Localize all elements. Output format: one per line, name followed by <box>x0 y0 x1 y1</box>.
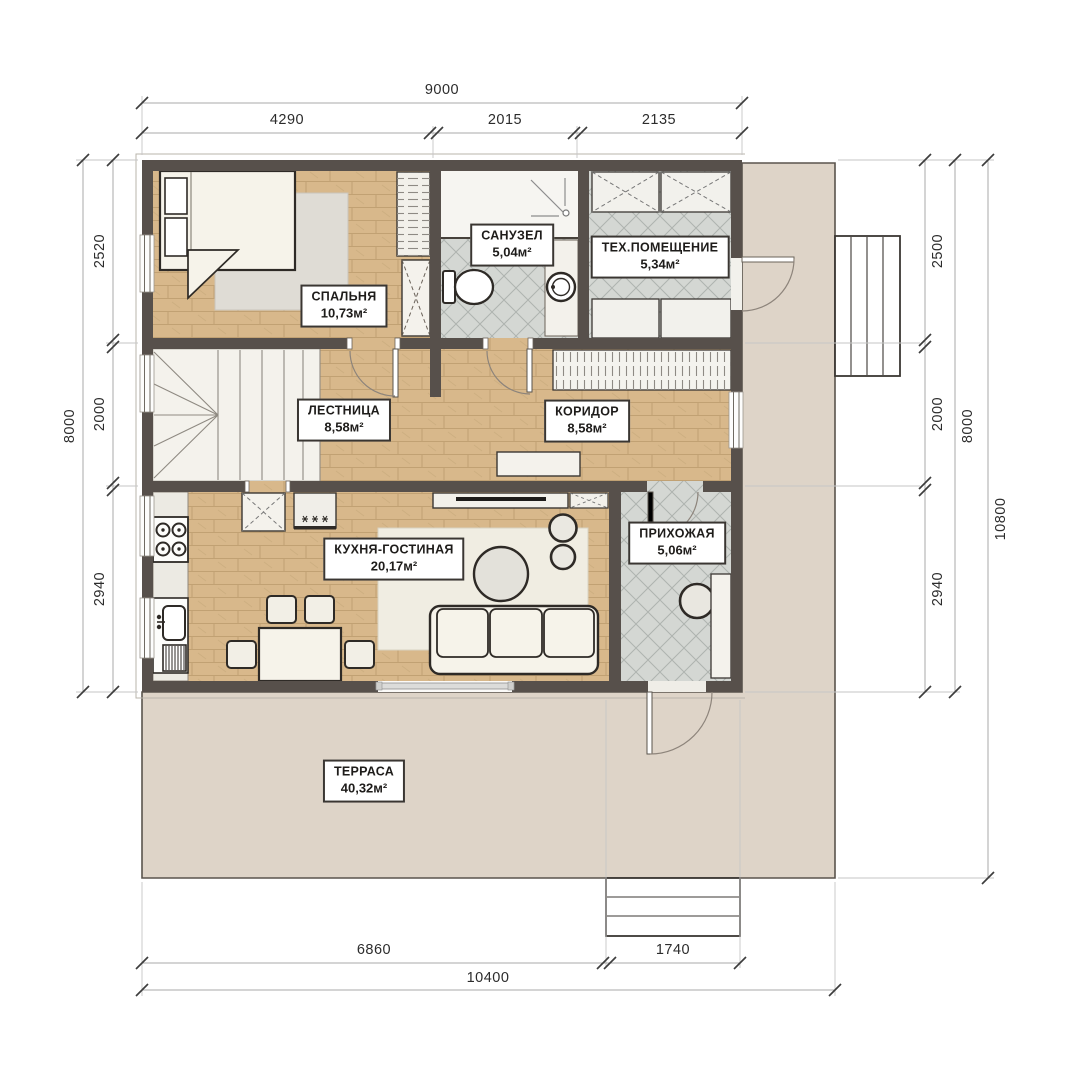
room-label-terrace: ТЕРРАСА 40,32м² <box>323 760 405 803</box>
floor-plan-drawing <box>0 0 1080 1080</box>
steps-bottom <box>606 878 740 936</box>
room-label-bathroom: САНУЗЕЛ 5,04м² <box>470 224 554 267</box>
room-area: 40,32м² <box>334 780 394 796</box>
room-name: ПРИХОЖАЯ <box>639 527 715 543</box>
room-label-tech-room: ТЕХ.ПОМЕЩЕНИЕ 5,34м² <box>591 236 730 279</box>
dim-right-seg3: 2940 <box>930 572 946 606</box>
dim-right-seg1: 2500 <box>930 234 946 268</box>
dim-bottom-seg2: 1740 <box>656 942 690 958</box>
dim-bottom-total: 10400 <box>467 970 510 986</box>
room-label-entry-hall: ПРИХОЖАЯ 5,06м² <box>628 522 726 565</box>
room-area: 20,17м² <box>334 558 453 574</box>
room-label-bedroom: СПАЛЬНЯ 10,73м² <box>300 285 387 328</box>
room-label-corridor: КОРИДОР 8,58м² <box>544 400 630 443</box>
room-area: 5,06м² <box>639 542 715 558</box>
room-label-kitchen-living: КУХНЯ-ГОСТИНАЯ 20,17м² <box>323 538 464 581</box>
room-area: 10,73м² <box>311 305 376 321</box>
room-label-stairs: ЛЕСТНИЦА 8,58м² <box>297 399 391 442</box>
room-name: КОРИДОР <box>555 405 619 421</box>
dim-top-seg3: 2135 <box>642 112 676 128</box>
room-area: 8,58м² <box>555 420 619 436</box>
room-area: 5,34м² <box>602 256 719 272</box>
dim-top-seg1: 4290 <box>270 112 304 128</box>
dim-left-seg2: 2000 <box>92 397 108 431</box>
dim-top-total: 9000 <box>425 82 459 98</box>
steps-right <box>835 236 900 376</box>
room-name: САНУЗЕЛ <box>481 229 543 245</box>
dim-right-seg2: 2000 <box>930 397 946 431</box>
room-area: 5,04м² <box>481 244 543 260</box>
room-area: 8,58м² <box>308 419 380 435</box>
floor-plan-page: СПАЛЬНЯ 10,73м² САНУЗЕЛ 5,04м² ТЕХ.ПОМЕЩ… <box>0 0 1080 1080</box>
room-name: КУХНЯ-ГОСТИНАЯ <box>334 543 453 559</box>
dim-right-overall: 10800 <box>993 498 1009 541</box>
dim-bottom-seg1: 6860 <box>357 942 391 958</box>
room-name: ТЕХ.ПОМЕЩЕНИЕ <box>602 241 719 257</box>
dim-left-seg3: 2940 <box>92 572 108 606</box>
room-name: ЛЕСТНИЦА <box>308 404 380 420</box>
dim-left-seg1: 2520 <box>92 234 108 268</box>
room-name: СПАЛЬНЯ <box>311 290 376 306</box>
room-name: ТЕРРАСА <box>334 765 394 781</box>
dim-left-total: 8000 <box>62 409 78 443</box>
dim-top-seg2: 2015 <box>488 112 522 128</box>
dim-right-total: 8000 <box>960 409 976 443</box>
